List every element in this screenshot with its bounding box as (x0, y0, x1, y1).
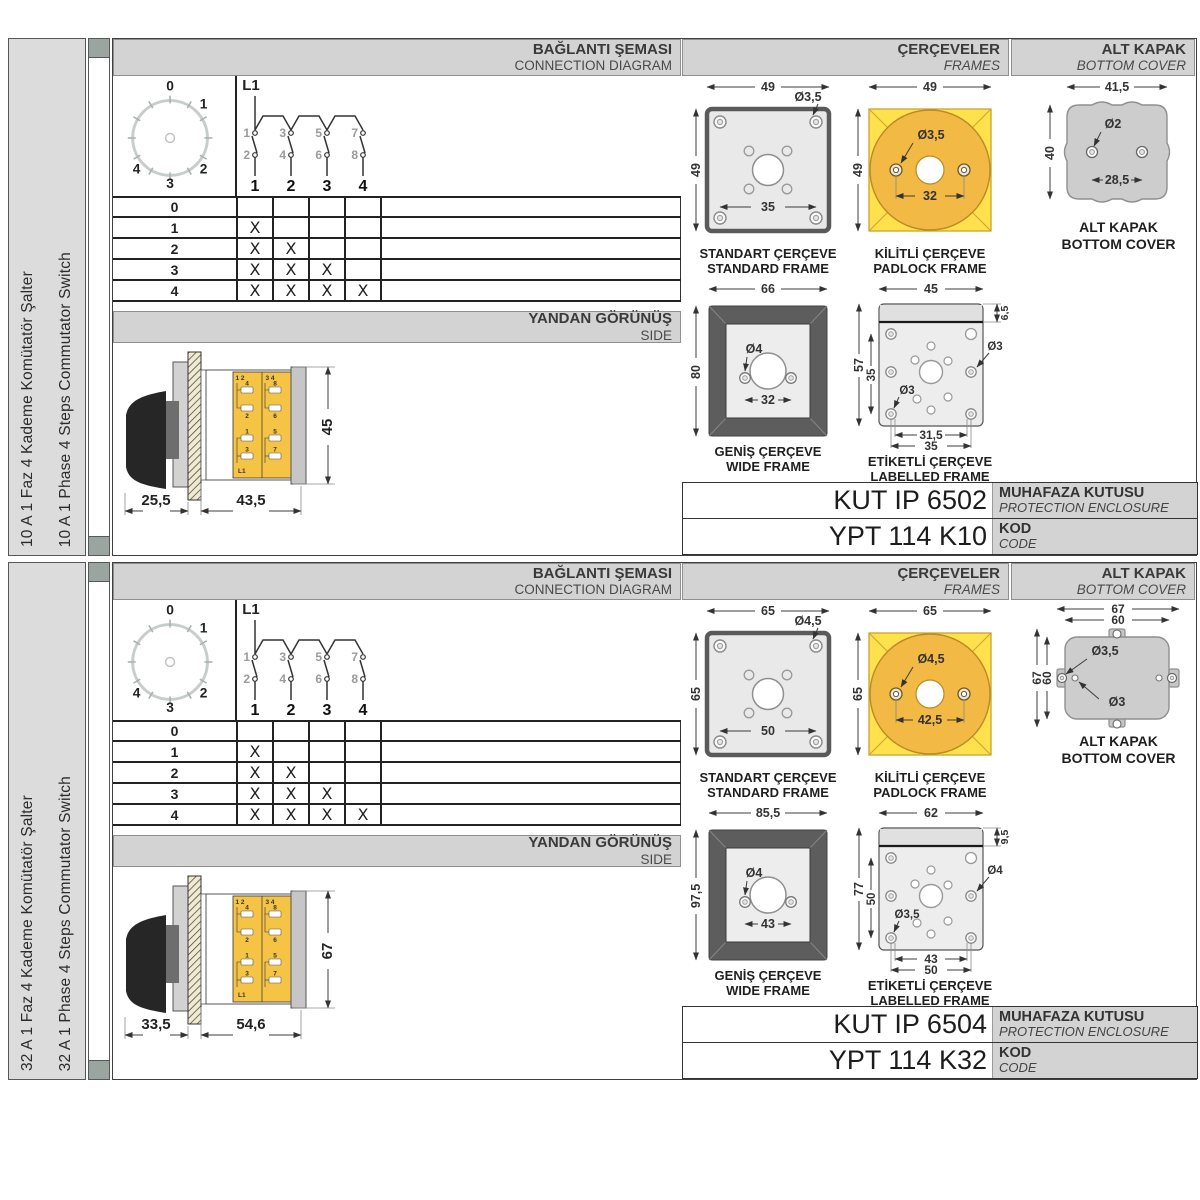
mark-cell: X (345, 280, 381, 301)
header-tr: BAĞLANTI ŞEMASI (533, 42, 672, 59)
bottom-cover-block: 67 60 67 60 Ø3,5 Ø3 (1031, 603, 1200, 766)
connection-diagram-header: BAĞLANTI ŞEMASI CONNECTION DIAGRAM (113, 39, 681, 76)
output-num: 2 (287, 178, 296, 195)
dial-pos-0: 0 (166, 603, 174, 618)
caption-tr: ETİKETLİ ÇERÇEVE (868, 454, 992, 469)
step-label: 1 (113, 217, 237, 238)
side-view-header: YANDAN GÖRÜNÜŞ SIDE (113, 835, 681, 867)
code-box: KUT IP 6504 MUHAFAZA KUTUSU PROTECTION E… (682, 1006, 1198, 1079)
header-en: BOTTOM COVER (1077, 582, 1186, 597)
header-tr: BAĞLANTI ŞEMASI (533, 566, 672, 583)
mark-cell (345, 721, 381, 741)
mark-cell (309, 762, 345, 783)
bottom-cover-block: 41,5 40 Ø2 28,5 ALT KAPAK BOTTOM COVER (1031, 79, 1200, 252)
dial-cell: 0 1 2 3 4 (113, 600, 237, 720)
catalog-page: 10 A 1 Faz 4 Kademe Komütatör Şalter 10 … (0, 0, 1200, 1200)
pair-label: 1 2 (235, 899, 244, 906)
block-line-label: L1 (238, 992, 246, 999)
standard-frame-caption: STANDART ÇERÇEVE STANDARD FRAME (700, 770, 837, 801)
dim-height: 40 (1043, 146, 1057, 160)
output-num: 1 (251, 702, 260, 719)
dim-span2: 35 (924, 439, 938, 452)
contact-num: 7 (351, 126, 358, 140)
contact-blades (252, 660, 365, 677)
bottom-cover-header: ALT KAPAK BOTTOM COVER (1011, 39, 1195, 76)
dim-width: 65 (923, 604, 937, 618)
dim-inner-height: 50 (866, 893, 878, 906)
mark-cell: X (273, 280, 309, 301)
caption-en: BOTTOM COVER (1061, 236, 1175, 253)
enclosure-code-value: KUT IP 6504 (683, 1007, 992, 1042)
dim-hole-small: Ø3 (1109, 695, 1126, 709)
dim-width: 85,5 (756, 806, 780, 820)
dim-height: 77 (852, 882, 866, 896)
terminal-num: 1 (245, 953, 249, 960)
dim-height: 97,5 (689, 884, 703, 908)
output-num: 4 (359, 702, 368, 719)
dim-body-depth: 43,5 (236, 492, 265, 509)
header-en: CONNECTION DIAGRAM (514, 58, 672, 73)
empty-cell (381, 721, 681, 741)
empty-cell (381, 259, 681, 280)
table-row: 1X (113, 741, 681, 762)
mark-cell: X (309, 804, 345, 825)
step-label: 2 (113, 762, 237, 783)
mark-cell (309, 238, 345, 259)
mark-cell: X (345, 804, 381, 825)
table-row: 2XX (113, 238, 681, 259)
product-title-tr: 10 A 1 Faz 4 Kademe Komütatör Şalter (19, 271, 37, 547)
mark-cell (273, 217, 309, 238)
terminal-num: 4 (245, 905, 249, 912)
mark-cell: X (273, 783, 309, 804)
mark-cell: X (237, 783, 273, 804)
output-num: 2 (287, 702, 296, 719)
standard-frame-drawing: 65 65 Ø4,5 50 (689, 603, 847, 768)
strip-marker-top (88, 38, 110, 58)
strip-marker-top (88, 562, 110, 582)
contact-num: 6 (315, 672, 322, 686)
contact-num: 1 (243, 650, 250, 664)
step-label: 1 (113, 741, 237, 762)
dim-span: 35 (761, 200, 775, 214)
section-strip (88, 562, 110, 1080)
mark-cell: X (237, 762, 273, 783)
dim-span2: 50 (924, 963, 938, 976)
padlock-frame-caption: KİLİTLİ ÇERÇEVE PADLOCK FRAME (873, 770, 986, 801)
caption-en: BOTTOM COVER (1061, 750, 1175, 767)
contact-num: 4 (279, 672, 286, 686)
side-view-header: YANDAN GÖRÜNÜŞ SIDE (113, 311, 681, 343)
table-row: 0 (113, 197, 681, 217)
empty-cell (381, 197, 681, 217)
step-contact-table: 0 1X 2XX 3XXX 4XXXX (113, 720, 681, 826)
dial-pos-3: 3 (166, 176, 174, 191)
label-en: PROTECTION ENCLOSURE (999, 501, 1197, 516)
step-label: 0 (113, 197, 237, 217)
mark-cell: X (237, 259, 273, 280)
code-label: KOD CODE (992, 1043, 1197, 1078)
labelled-frame-caption: ETİKETLİ ÇERÇEVE LABELLED FRAME (868, 454, 992, 485)
contact-points (253, 131, 366, 158)
product-title-en: 32 A 1 Phase 4 Steps Commutator Switch (57, 776, 75, 1071)
mark-cell: X (237, 280, 273, 301)
contact-num: 3 (279, 126, 286, 140)
dim-span: 28,5 (1104, 173, 1128, 187)
dim-span: 32 (761, 393, 775, 407)
terminal-num: 2 (245, 937, 249, 944)
empty-cell (381, 238, 681, 259)
mark-cell (345, 783, 381, 804)
contact-num: 6 (315, 148, 322, 162)
labelled-frame-block: 45 6,5 57 35 (851, 282, 1009, 485)
output-num: 4 (359, 178, 368, 195)
contact-num: 5 (315, 126, 322, 140)
mark-cell: X (237, 741, 273, 762)
spacer (201, 894, 206, 1004)
mark-cell (345, 197, 381, 217)
label-en: CODE (999, 537, 1197, 552)
empty-cell (381, 804, 681, 825)
dim-width: 41,5 (1104, 80, 1128, 94)
padlock-frame-drawing: 49 49 Ø3,5 32 (851, 79, 1009, 244)
header-en: SIDE (640, 328, 672, 343)
mark-cell (345, 259, 381, 280)
label-tr: KOD (999, 1045, 1197, 1061)
terminal-num: 7 (273, 447, 277, 454)
dim-hole: Ø3,5 (794, 90, 821, 104)
panel-plate-hatched (188, 352, 201, 500)
product-title-tr: 32 A 1 Faz 4 Kademe Komütatör Şalter (19, 795, 37, 1071)
mark-cell (273, 197, 309, 217)
mark-cell: X (237, 217, 273, 238)
dim-width: 49 (923, 80, 937, 94)
terminal-num: 5 (273, 953, 277, 960)
switch-handle (126, 915, 166, 1013)
empty-cell (381, 762, 681, 783)
switch-dial-diagram: 0 1 2 3 4 (113, 600, 235, 720)
bottom-cover-header: ALT KAPAK BOTTOM COVER (1011, 563, 1195, 600)
dim-height: 57 (852, 358, 866, 372)
end-plate (291, 367, 306, 484)
caption-en: STANDARD FRAME (700, 261, 837, 276)
header-en: BOTTOM COVER (1077, 58, 1186, 73)
output-num: 1 (251, 178, 260, 195)
standard-frame-block: 49 49 Ø3,5 35 STANDART ÇERÇEV (689, 79, 847, 277)
contact-num: 2 (243, 148, 250, 162)
terminal-num: 6 (273, 937, 277, 944)
table-row: 2XX (113, 762, 681, 783)
caption-tr: ALT KAPAK (1061, 733, 1175, 750)
terminal-num: 5 (273, 429, 277, 436)
mark-cell: X (309, 259, 345, 280)
dim-width-inner: 60 (1111, 613, 1125, 627)
product-title-vertical: 10 A 1 Faz 4 Kademe Komütatör Şalter 10 … (8, 38, 86, 556)
connection-diagram-box: 0 1 2 3 4 L1 (113, 600, 681, 722)
mark-cell (237, 721, 273, 741)
caption-tr: KİLİTLİ ÇERÇEVE (873, 770, 986, 785)
empty-cell (381, 280, 681, 301)
contact-num: 2 (243, 672, 250, 686)
mark-cell: X (237, 804, 273, 825)
side-view-drawing: 1 2 3 4 4 2 8 6 1 3 5 7 L1 (113, 343, 681, 528)
header-tr: YANDAN GÖRÜNÜŞ (528, 835, 672, 852)
pair-label: 1 2 (235, 375, 244, 382)
product-code-row: YPT 114 K10 KOD CODE (683, 518, 1197, 554)
label-tr: MUHAFAZA KUTUSU (999, 485, 1197, 501)
dim-span: 43 (761, 917, 775, 931)
padlock-frame-block: 65 65 Ø4,5 42,5 KİLİTLİ ÇERÇEVE PA (851, 603, 1009, 801)
terminal-num: 8 (273, 905, 277, 912)
strip-marker-bottom (88, 536, 110, 556)
contact-num: 7 (351, 650, 358, 664)
bottom-cover-caption: ALT KAPAK BOTTOM COVER (1061, 219, 1175, 252)
dim-inner-height: 35 (866, 368, 878, 381)
dim-height: 65 (689, 687, 703, 701)
dim-width: 49 (761, 80, 775, 94)
output-num: 3 (323, 178, 332, 195)
caption-en: STANDARD FRAME (700, 785, 837, 800)
caption-tr: GENİŞ ÇERÇEVE (715, 444, 822, 459)
contact-cell: L1 1 3 5 7 (237, 76, 681, 196)
step-label: 3 (113, 259, 237, 280)
caption-tr: STANDART ÇERÇEVE (700, 770, 837, 785)
frames-header: ÇERÇEVELER FRAMES (682, 39, 1009, 76)
mark-cell (237, 197, 273, 217)
end-plate (291, 891, 306, 1008)
dim-width: 65 (761, 604, 775, 618)
enclosure-code-row: KUT IP 6502 MUHAFAZA KUTUSU PROTECTION E… (683, 483, 1197, 518)
mark-cell (345, 217, 381, 238)
dim-hole-left: Ø3,5 (895, 909, 921, 921)
padlock-frame-block: 49 49 Ø3,5 32 KİLİTLİ ÇERÇEVE PADL (851, 79, 1009, 277)
dim-width: 45 (924, 282, 938, 296)
enclosure-code-row: KUT IP 6504 MUHAFAZA KUTUSU PROTECTION E… (683, 1007, 1197, 1042)
dim-strip: 9,5 (999, 830, 1009, 845)
connection-diagram-box: 0 1 2 3 4 L1 (113, 76, 681, 198)
dim-height-inner: 60 (1040, 671, 1054, 685)
mark-cell: X (273, 804, 309, 825)
dim-hole-left: Ø3 (899, 385, 914, 397)
contact-num: 8 (351, 672, 358, 686)
output-num: 3 (323, 702, 332, 719)
step-label: 0 (113, 721, 237, 741)
labelled-frame-caption: ETİKETLİ ÇERÇEVE LABELLED FRAME (868, 978, 992, 1009)
mark-cell: X (273, 238, 309, 259)
switch-dial-diagram: 0 1 2 3 4 (113, 76, 235, 196)
table-row: 3XXX (113, 259, 681, 280)
mark-cell (273, 741, 309, 762)
header-tr: ALT KAPAK (1102, 42, 1186, 59)
label-en: CODE (999, 1061, 1197, 1076)
caption-tr: ETİKETLİ ÇERÇEVE (868, 978, 992, 993)
code-box: KUT IP 6502 MUHAFAZA KUTUSU PROTECTION E… (682, 482, 1198, 555)
section-main-panel: BAĞLANTI ŞEMASI CONNECTION DIAGRAM ÇERÇE… (112, 562, 1197, 1080)
dial-pos-4: 4 (133, 685, 141, 700)
panel-plate-hatched (188, 876, 201, 1024)
dial-pos-4: 4 (133, 161, 141, 176)
bottom-cover-drawing: 67 60 67 60 Ø3,5 Ø3 (1031, 603, 1200, 731)
mark-cell (345, 238, 381, 259)
contact-points (253, 655, 366, 682)
terminal-num: 2 (245, 413, 249, 420)
caption-tr: KİLİTLİ ÇERÇEVE (873, 246, 986, 261)
label-en: PROTECTION ENCLOSURE (999, 1025, 1197, 1040)
standard-frame-drawing: 49 49 Ø3,5 35 (689, 79, 847, 244)
standard-frame-caption: STANDART ÇERÇEVE STANDARD FRAME (700, 246, 837, 277)
contact-cell: L1 1 3 5 7 (237, 600, 681, 720)
dim-handle-depth: 33,5 (141, 1016, 170, 1033)
dim-height: 45 (319, 419, 336, 436)
caption-tr: GENİŞ ÇERÇEVE (715, 968, 822, 983)
handle-neck (166, 925, 179, 983)
table-row: 4XXXX (113, 280, 681, 301)
product-code-value: YPT 114 K10 (683, 519, 992, 554)
dim-hole: Ø4,5 (917, 652, 944, 666)
mark-cell (309, 721, 345, 741)
dim-width: 62 (924, 806, 938, 820)
step-label: 2 (113, 238, 237, 259)
enclosure-label: MUHAFAZA KUTUSU PROTECTION ENCLOSURE (992, 1007, 1197, 1042)
contact-blades (252, 136, 365, 153)
mark-cell: X (273, 259, 309, 280)
terminal-num: 4 (245, 381, 249, 388)
line-label: L1 (242, 77, 260, 94)
mark-cell (273, 721, 309, 741)
bottom-cover-drawing: 41,5 40 Ø2 28,5 (1034, 79, 1200, 217)
dim-hole-right: Ø3 (987, 341, 1002, 353)
contact-diagram: L1 1 3 5 7 (237, 76, 681, 196)
label-tr: KOD (999, 521, 1197, 537)
empty-cell (381, 741, 681, 762)
code-label: KOD CODE (992, 519, 1197, 554)
dial-pos-0: 0 (166, 79, 174, 94)
product-section-10a: 10 A 1 Faz 4 Kademe Komütatör Şalter 10 … (8, 38, 1197, 556)
terminal-num: 3 (245, 447, 249, 454)
terminal-num: 6 (273, 413, 277, 420)
dim-height: 67 (319, 943, 336, 960)
dial-pos-1: 1 (200, 96, 208, 111)
dim-height: 65 (851, 687, 865, 701)
product-title-en: 10 A 1 Phase 4 Steps Commutator Switch (57, 252, 75, 547)
table-row: 3XXX (113, 783, 681, 804)
enclosure-label: MUHAFAZA KUTUSU PROTECTION ENCLOSURE (992, 483, 1197, 518)
dim-body-depth: 54,6 (236, 1016, 265, 1033)
caption-en: WIDE FRAME (715, 459, 822, 474)
mark-cell: X (273, 762, 309, 783)
step-label: 4 (113, 804, 237, 825)
dim-span: 32 (923, 189, 937, 203)
contact-num: 3 (279, 650, 286, 664)
dim-span: 50 (761, 724, 775, 738)
caption-en: WIDE FRAME (715, 983, 822, 998)
wide-frame-drawing: 85,5 97,5 Ø4 43 (689, 806, 847, 966)
caption-tr: ALT KAPAK (1061, 219, 1175, 236)
header-en: SIDE (640, 852, 672, 867)
enclosure-code-value: KUT IP 6502 (683, 483, 992, 518)
table-row: 4XXXX (113, 804, 681, 825)
handle-neck (166, 401, 179, 459)
mark-cell (309, 197, 345, 217)
header-en: FRAMES (944, 58, 1000, 73)
step-contact-table: 0 1X 2XX 3XXX 4XXXX (113, 196, 681, 302)
terminal-num: 8 (273, 381, 277, 388)
wide-frame-block: 85,5 97,5 Ø4 43 GENİŞ ÇERÇEVE WIDE (689, 806, 847, 999)
caption-en: PADLOCK FRAME (873, 261, 986, 276)
dim-height: 49 (689, 163, 703, 177)
mark-cell (309, 741, 345, 762)
dim-hole: Ø4 (746, 342, 763, 356)
labelled-frame-drawing: 62 9,5 77 50 (851, 806, 1009, 976)
dim-strip: 6,5 (999, 306, 1009, 321)
mark-cell (345, 762, 381, 783)
wide-frame-drawing: 66 80 Ø4 32 (689, 282, 847, 442)
dim-hole: Ø4,5 (794, 614, 821, 628)
frames-header: ÇERÇEVELER FRAMES (682, 563, 1009, 600)
caption-en: PADLOCK FRAME (873, 785, 986, 800)
mark-cell: X (309, 280, 345, 301)
contact-diagram: L1 1 3 5 7 (237, 600, 681, 720)
dial-cell: 0 1 2 3 4 (113, 76, 237, 196)
strip-marker-bottom (88, 1060, 110, 1080)
step-label: 3 (113, 783, 237, 804)
product-section-32a: 32 A 1 Faz 4 Kademe Komütatör Şalter 32 … (8, 562, 1197, 1080)
header-en: FRAMES (944, 582, 1000, 597)
padlock-frame-drawing: 65 65 Ø4,5 42,5 (851, 603, 1009, 768)
mark-cell: X (237, 238, 273, 259)
dim-hole: Ø3,5 (917, 128, 944, 142)
header-tr: YANDAN GÖRÜNÜŞ (528, 311, 672, 328)
block-line-label: L1 (238, 468, 246, 475)
mark-cell: X (309, 783, 345, 804)
section-main-panel: BAĞLANTI ŞEMASI CONNECTION DIAGRAM ÇERÇE… (112, 38, 1197, 556)
empty-cell (381, 217, 681, 238)
side-view-drawing: 1 2 3 4 4 2 8 6 1 3 5 7 L1 (113, 867, 681, 1052)
terminal-num: 7 (273, 971, 277, 978)
contact-num: 1 (243, 126, 250, 140)
terminal-num: 1 (245, 429, 249, 436)
header-tr: ÇERÇEVELER (897, 42, 1000, 59)
product-code-value: YPT 114 K32 (683, 1043, 992, 1078)
dim-height: 80 (689, 365, 703, 379)
wide-frame-caption: GENİŞ ÇERÇEVE WIDE FRAME (715, 444, 822, 475)
switch-handle (126, 391, 166, 489)
product-code-row: YPT 114 K32 KOD CODE (683, 1042, 1197, 1078)
step-label: 4 (113, 280, 237, 301)
dim-hole-big: Ø3,5 (1091, 644, 1118, 658)
dial-pos-3: 3 (166, 700, 174, 715)
table-row: 1X (113, 217, 681, 238)
dial-pos-1: 1 (200, 620, 208, 635)
contact-num: 4 (279, 148, 286, 162)
contact-num: 5 (315, 650, 322, 664)
dim-hole-right: Ø4 (987, 865, 1003, 877)
labelled-frame-drawing: 45 6,5 57 35 (851, 282, 1009, 452)
padlock-frame-caption: KİLİTLİ ÇERÇEVE PADLOCK FRAME (873, 246, 986, 277)
dim-height: 49 (851, 163, 865, 177)
dim-hole: Ø2 (1104, 117, 1121, 131)
header-tr: ALT KAPAK (1102, 566, 1186, 583)
bottom-cover-caption: ALT KAPAK BOTTOM COVER (1061, 733, 1175, 766)
dim-handle-depth: 25,5 (141, 492, 170, 509)
label-tr: MUHAFAZA KUTUSU (999, 1009, 1197, 1025)
empty-cell (381, 783, 681, 804)
contact-num: 8 (351, 148, 358, 162)
header-en: CONNECTION DIAGRAM (514, 582, 672, 597)
dial-pos-2: 2 (200, 161, 208, 176)
wide-frame-block: 66 80 Ø4 32 GENİŞ ÇERÇEVE WIDE FRA (689, 282, 847, 475)
dim-hole: Ø4 (746, 866, 763, 880)
